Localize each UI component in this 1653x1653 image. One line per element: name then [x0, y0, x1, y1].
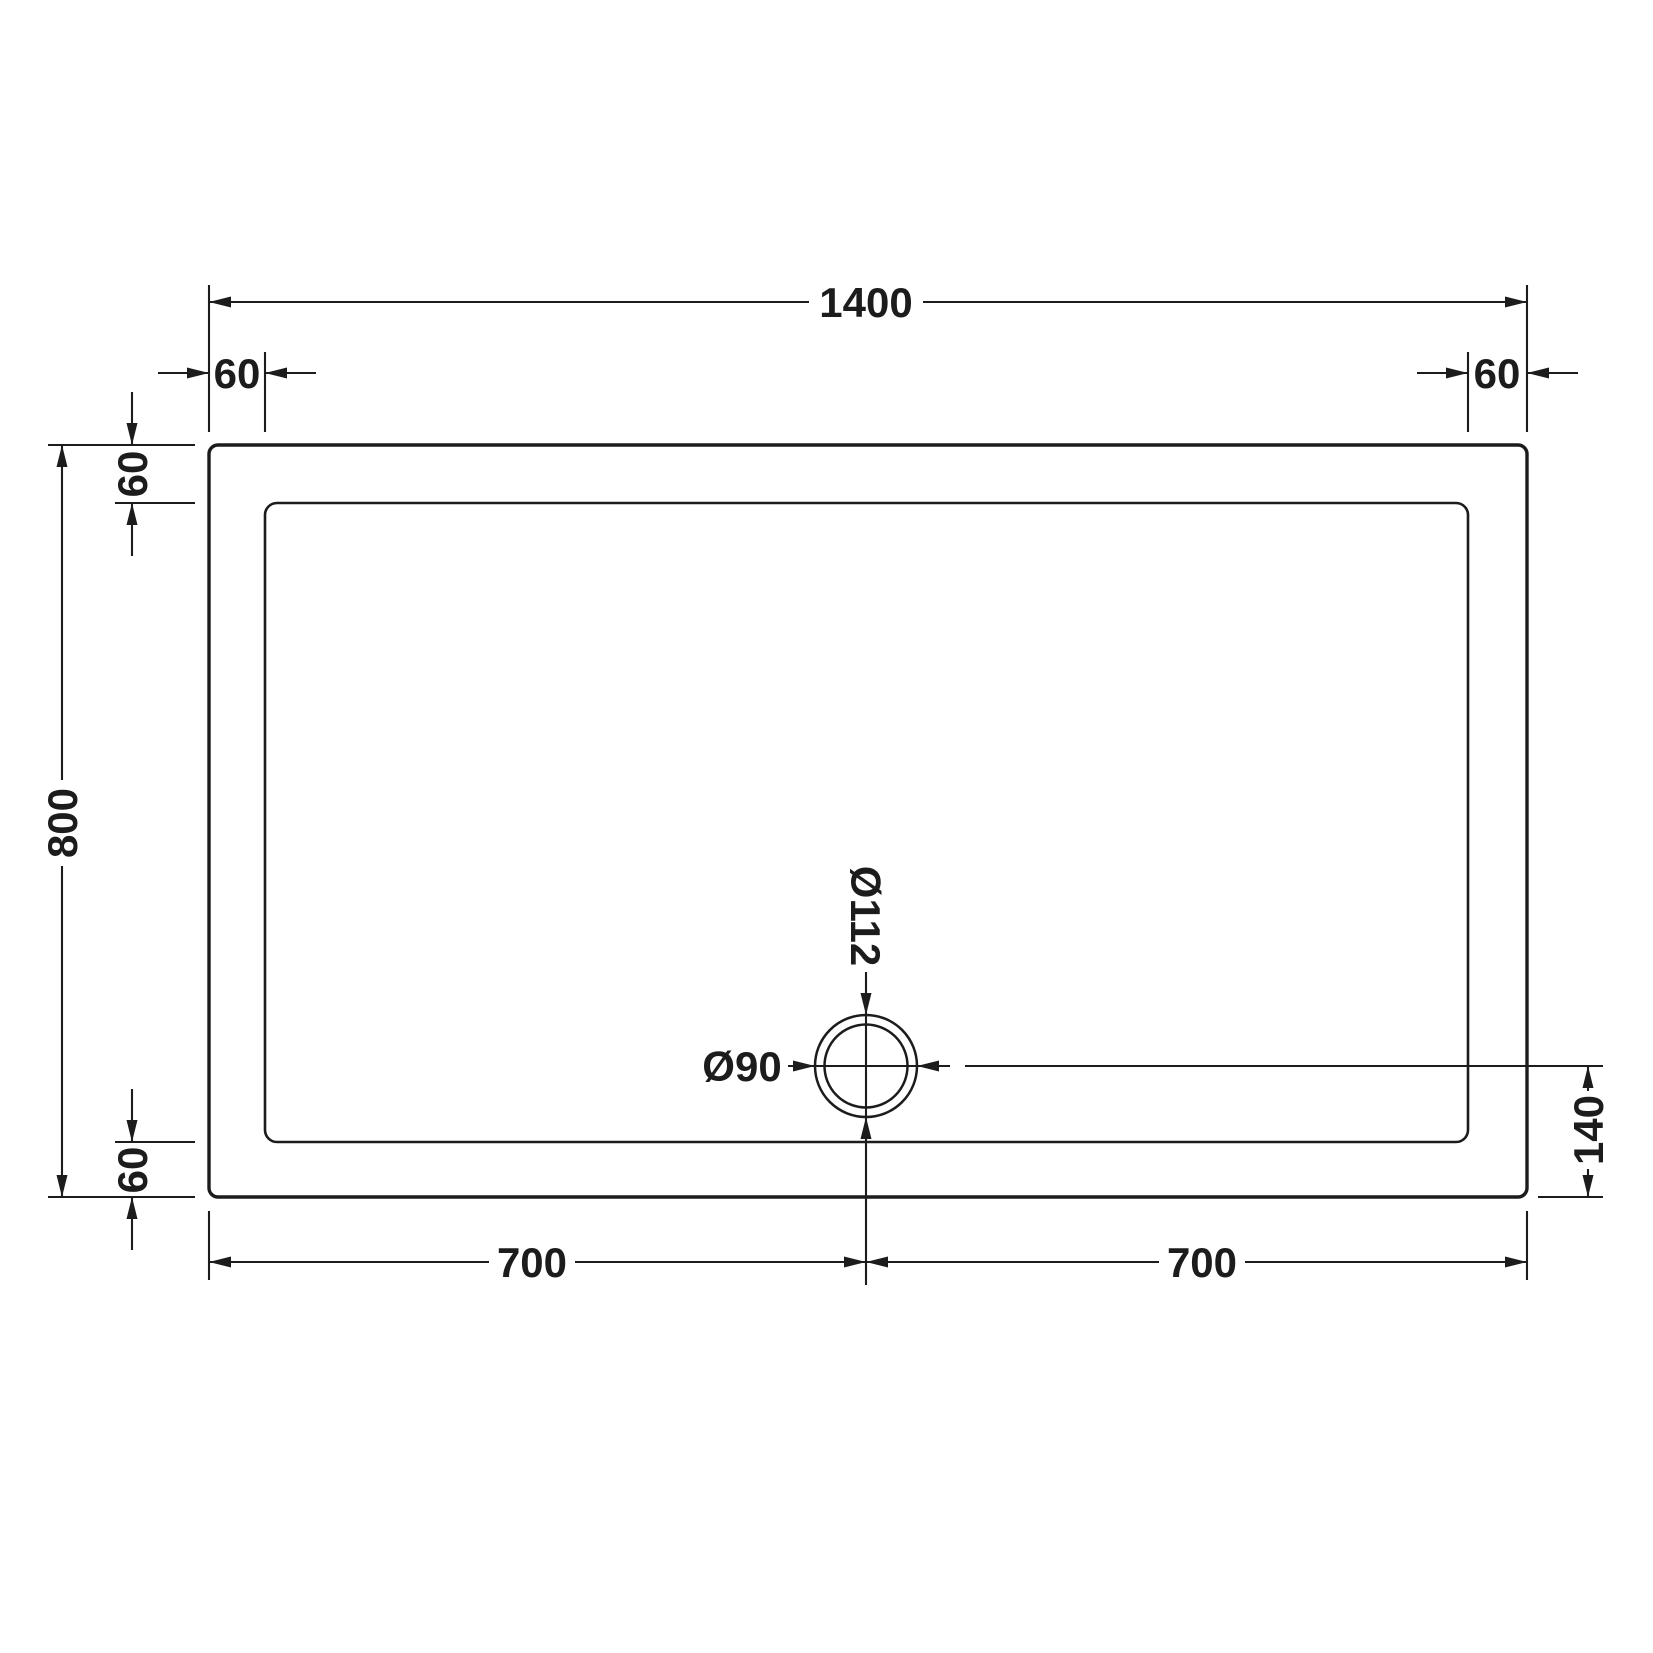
- arrowhead-right: [844, 1257, 866, 1268]
- dim-edge-top-right: 60: [1417, 350, 1578, 432]
- arrowhead-left: [265, 368, 287, 379]
- tray-outer-edge: [209, 445, 1527, 1197]
- dim-edge-left-upper: 60: [109, 392, 195, 556]
- dim-edge-left-lower: 60: [109, 1089, 195, 1250]
- arrowhead-up: [127, 1197, 138, 1219]
- arrowhead-left: [1527, 368, 1549, 379]
- arrowhead-left: [866, 1257, 888, 1268]
- dim-label-700-left: 700: [497, 1239, 567, 1286]
- dim-bottom-spans: 700 700: [209, 1211, 1527, 1286]
- dim-label-60-left-upper: 60: [109, 451, 156, 498]
- drawing-canvas: 1400 60 60 800 60: [0, 0, 1653, 1653]
- arrowhead-right: [1505, 1257, 1527, 1268]
- arrowhead-down: [1583, 1175, 1594, 1197]
- arrowhead-right: [1446, 368, 1468, 379]
- arrowhead-down: [861, 993, 872, 1015]
- dim-label-60-left-lower: 60: [109, 1147, 156, 1194]
- arrowhead-right: [187, 368, 209, 379]
- arrowhead-right: [1505, 297, 1527, 308]
- dim-label-waste-outer-dia: Ø112: [842, 866, 889, 966]
- arrowhead-left: [209, 1257, 231, 1268]
- arrowhead-up: [57, 445, 68, 467]
- dim-waste-outer-dia: Ø112: [842, 866, 889, 1285]
- arrowhead-up: [1583, 1066, 1594, 1088]
- arrowhead-left: [917, 1061, 939, 1072]
- dim-label-60-top-right: 60: [1474, 350, 1521, 397]
- dim-label-60-top-left: 60: [214, 350, 261, 397]
- arrowhead-left: [209, 297, 231, 308]
- dim-waste-to-bottom: 140: [965, 1066, 1612, 1197]
- arrowhead-down: [127, 1120, 138, 1142]
- arrowhead-down: [57, 1175, 68, 1197]
- dim-label-140: 140: [1565, 1095, 1612, 1165]
- dim-label-1400: 1400: [819, 279, 912, 326]
- tray-outline: [209, 445, 1527, 1197]
- dim-label-800: 800: [39, 788, 86, 858]
- arrowhead-down: [127, 423, 138, 445]
- dim-overall-depth: 800: [39, 445, 195, 1197]
- arrowhead-right: [793, 1061, 815, 1072]
- dim-label-700-right: 700: [1167, 1239, 1237, 1286]
- arrowhead-up: [127, 503, 138, 525]
- dim-label-waste-inner-dia: Ø90: [702, 1043, 781, 1090]
- arrowhead-up: [861, 1117, 872, 1139]
- shower-tray-plan-drawing: 1400 60 60 800 60: [0, 0, 1653, 1653]
- dim-edge-top-left: 60: [158, 350, 316, 432]
- dim-overall-width: 1400: [209, 279, 1527, 432]
